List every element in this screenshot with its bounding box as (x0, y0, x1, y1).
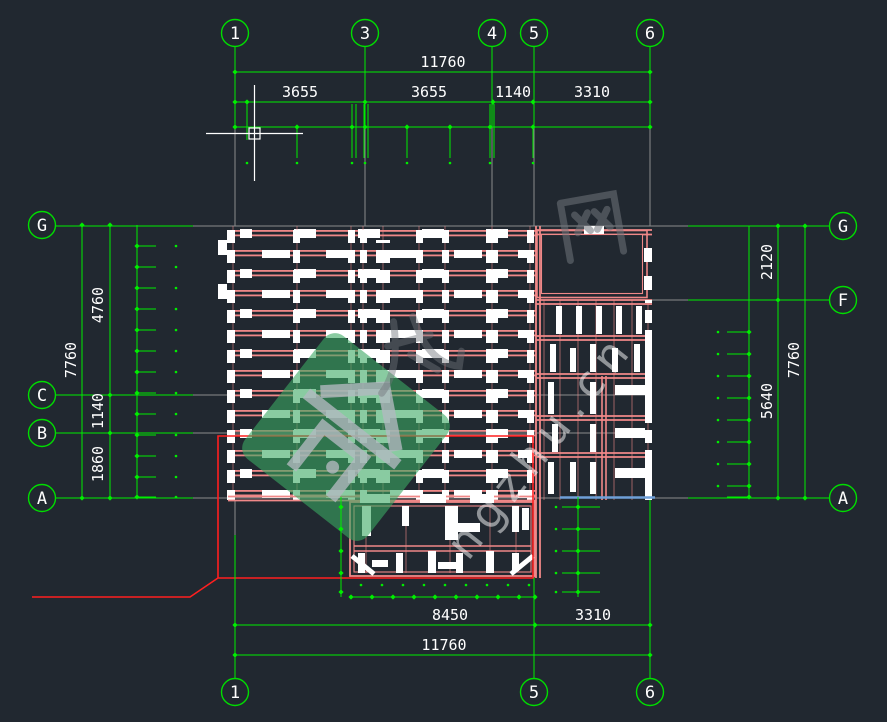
dim-top-total: 11760 (420, 53, 465, 71)
axis-bubble-right-A: A (838, 489, 848, 509)
dim-bottom-total: 11760 (421, 636, 466, 654)
axis-bubble-top-5: 5 (529, 24, 539, 44)
axis-bubble-left-B: B (37, 424, 47, 444)
dim-right-total: 7760 (785, 342, 803, 378)
axis-bubble-left-A: A (37, 489, 47, 509)
axis-bubble-bottom-5: 5 (529, 683, 539, 703)
dim-top-seg-4: 3310 (574, 83, 610, 101)
dim-left-seg-3: 1860 (89, 446, 107, 482)
axis-bubble-top-4: 4 (487, 24, 497, 44)
axis-bubble-right-G: G (838, 217, 848, 237)
dim-right-seg-1: 2120 (758, 244, 776, 280)
void-room (537, 226, 652, 298)
dim-top-seg-2: 3655 (411, 83, 447, 101)
dim-bottom-seg-1: 8450 (432, 606, 468, 624)
dim-left-seg-1: 4760 (89, 287, 107, 323)
axis-bubble-top-1: 1 (230, 24, 240, 44)
axis-bubble-bottom-6: 6 (645, 683, 655, 703)
dim-bottom-seg-2: 3310 (575, 606, 611, 624)
axis-bubble-top-6: 6 (645, 24, 655, 44)
dim-top-seg-1: 3655 (282, 83, 318, 101)
axis-bubble-left-C: C (37, 386, 47, 406)
cad-canvas[interactable]: 1 3 4 5 6 1 5 6 G C B A G F A 11760 3655… (0, 0, 887, 722)
dim-left-total: 7760 (62, 342, 80, 378)
axis-bubble-right-F: F (838, 291, 848, 311)
dim-right-seg-2: 5640 (758, 383, 776, 419)
axis-bubble-top-3: 3 (360, 24, 370, 44)
axis-bubble-bottom-1: 1 (230, 683, 240, 703)
axis-bubble-left-G: G (37, 216, 47, 236)
dim-left-seg-2: 1140 (89, 393, 107, 429)
dim-top-seg-3: 1140 (495, 83, 531, 101)
cad-viewport[interactable]: 1 3 4 5 6 1 5 6 G C B A G F A 11760 3655… (0, 0, 887, 722)
